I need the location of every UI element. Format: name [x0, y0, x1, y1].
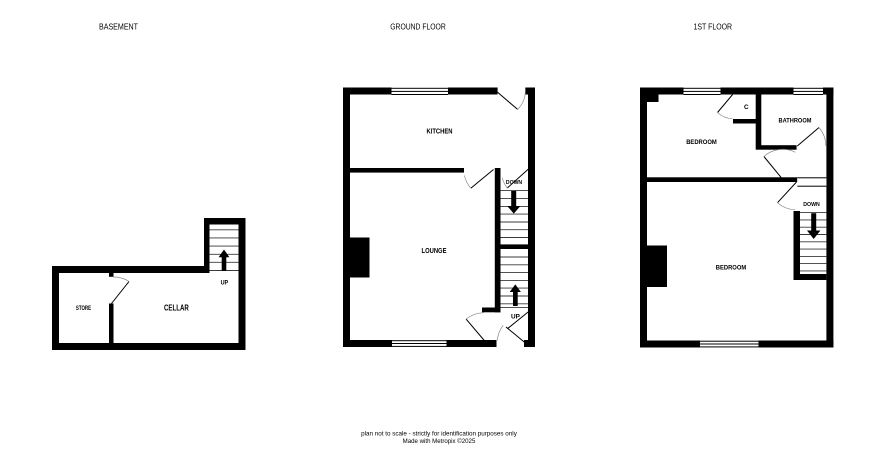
svg-text:BASEMENT: BASEMENT — [99, 22, 138, 32]
svg-text:STORE: STORE — [76, 305, 91, 312]
svg-text:GROUND FLOOR: GROUND FLOOR — [390, 22, 446, 32]
svg-text:plan not to scale - strictly f: plan not to scale - strictly for identif… — [361, 430, 517, 437]
svg-text:DOWN: DOWN — [803, 202, 819, 208]
svg-text:C: C — [744, 104, 749, 111]
svg-text:LOUNGE: LOUNGE — [422, 248, 447, 255]
svg-text:KITCHEN: KITCHEN — [427, 129, 453, 136]
svg-text:Made with Metropix ©2025: Made with Metropix ©2025 — [403, 437, 476, 445]
svg-text:BEDROOM: BEDROOM — [686, 139, 717, 146]
svg-text:BEDROOM: BEDROOM — [716, 264, 747, 271]
svg-text:UP: UP — [221, 279, 229, 286]
svg-text:BATHROOM: BATHROOM — [779, 117, 812, 124]
svg-text:CELLAR: CELLAR — [164, 303, 189, 313]
svg-text:1ST FLOOR: 1ST FLOOR — [694, 22, 733, 32]
svg-text:DOWN: DOWN — [506, 180, 522, 186]
